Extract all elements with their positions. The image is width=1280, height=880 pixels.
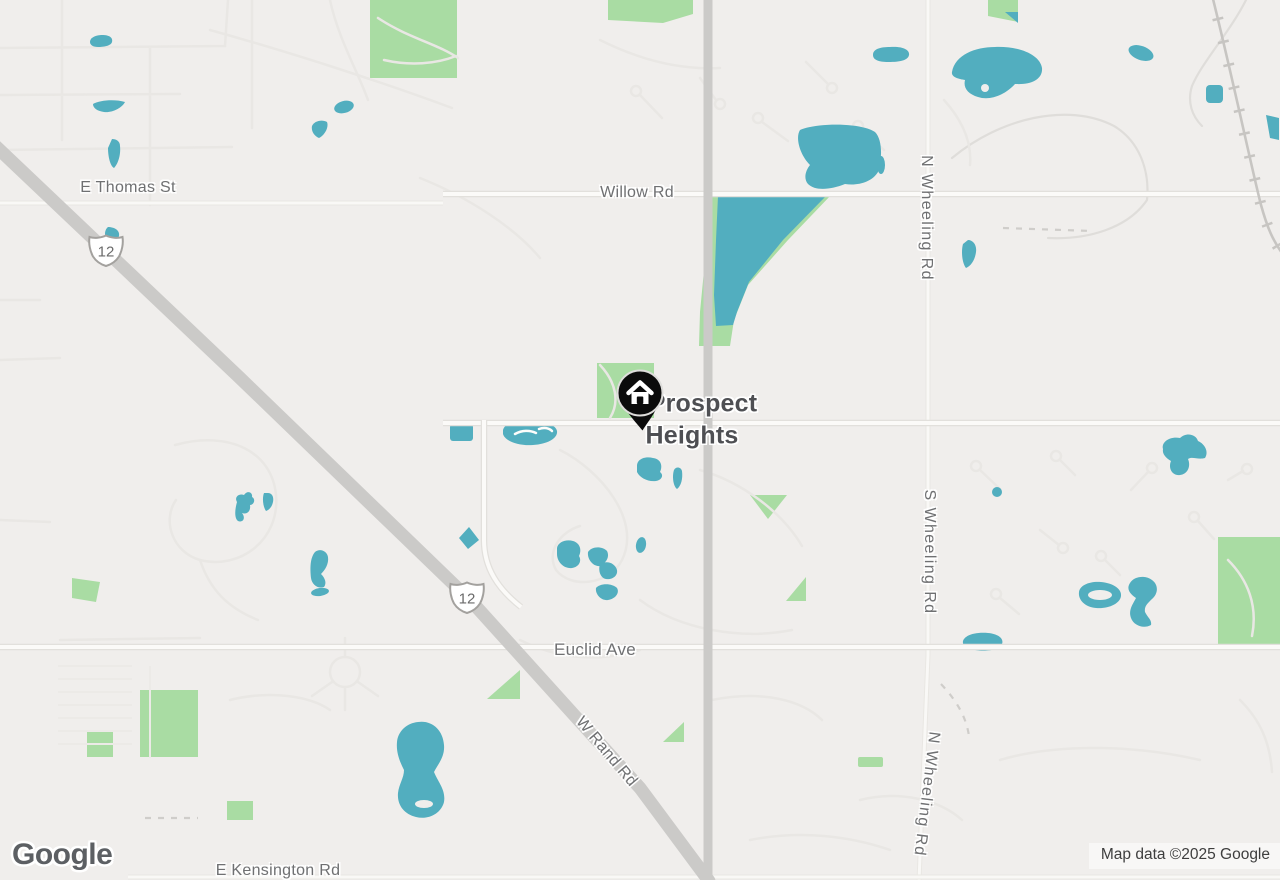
- pond: [333, 99, 355, 116]
- road-label-e-kensington-rd: E Kensington Rd: [216, 862, 341, 880]
- pond: [90, 35, 112, 47]
- park: [227, 801, 253, 820]
- route-shield-us12: 12: [87, 233, 125, 273]
- pond: [93, 100, 125, 112]
- pond: [673, 467, 682, 489]
- road-label-e-thomas-st: E Thomas St: [80, 179, 176, 197]
- route-shield-us12: 12: [448, 580, 486, 620]
- lake: [1206, 85, 1223, 103]
- pond: [108, 139, 120, 168]
- svg-text:12: 12: [459, 591, 476, 608]
- lake: [1266, 115, 1279, 140]
- park: [786, 577, 806, 601]
- park: [140, 690, 198, 757]
- google-logo[interactable]: Google: [12, 838, 112, 872]
- lake: [1126, 42, 1155, 64]
- pond: [635, 536, 648, 553]
- pond: [312, 121, 328, 138]
- pond: [557, 540, 580, 568]
- pond: [596, 584, 618, 600]
- pond: [637, 457, 662, 481]
- lake: [798, 125, 881, 189]
- pond: [992, 487, 1002, 497]
- park: [663, 722, 684, 742]
- lake: [873, 47, 909, 62]
- svg-text:12: 12: [98, 244, 115, 261]
- pond: [962, 240, 976, 268]
- home-location-marker[interactable]: [612, 366, 672, 436]
- map-attribution: Map data ©2025 Google: [1089, 843, 1280, 869]
- road-label-s-wheeling-rd: S Wheeling Rd: [920, 490, 938, 615]
- road-label-willow-rd: Willow Rd: [600, 184, 674, 202]
- road-label-n-wheeling-rd-top: N Wheeling Rd: [917, 155, 935, 281]
- pond: [310, 550, 328, 587]
- pond: [599, 562, 617, 579]
- park: [487, 670, 520, 699]
- park: [72, 578, 100, 602]
- pond: [235, 492, 254, 521]
- park: [858, 757, 883, 767]
- road-label-euclid-ave: Euclid Ave: [554, 640, 636, 660]
- park: [608, 0, 693, 23]
- map-canvas[interactable]: E Thomas St Willow Rd N Wheeling Rd S Wh…: [0, 0, 1280, 880]
- pond: [311, 587, 330, 597]
- pond: [877, 156, 885, 174]
- map-tile-layer: [0, 0, 1280, 880]
- park: [370, 0, 457, 78]
- lake: [952, 47, 1042, 98]
- lake: [1163, 434, 1207, 475]
- pond: [450, 424, 473, 441]
- pond: [263, 493, 273, 511]
- pond: [459, 527, 479, 549]
- lake: [1128, 577, 1156, 627]
